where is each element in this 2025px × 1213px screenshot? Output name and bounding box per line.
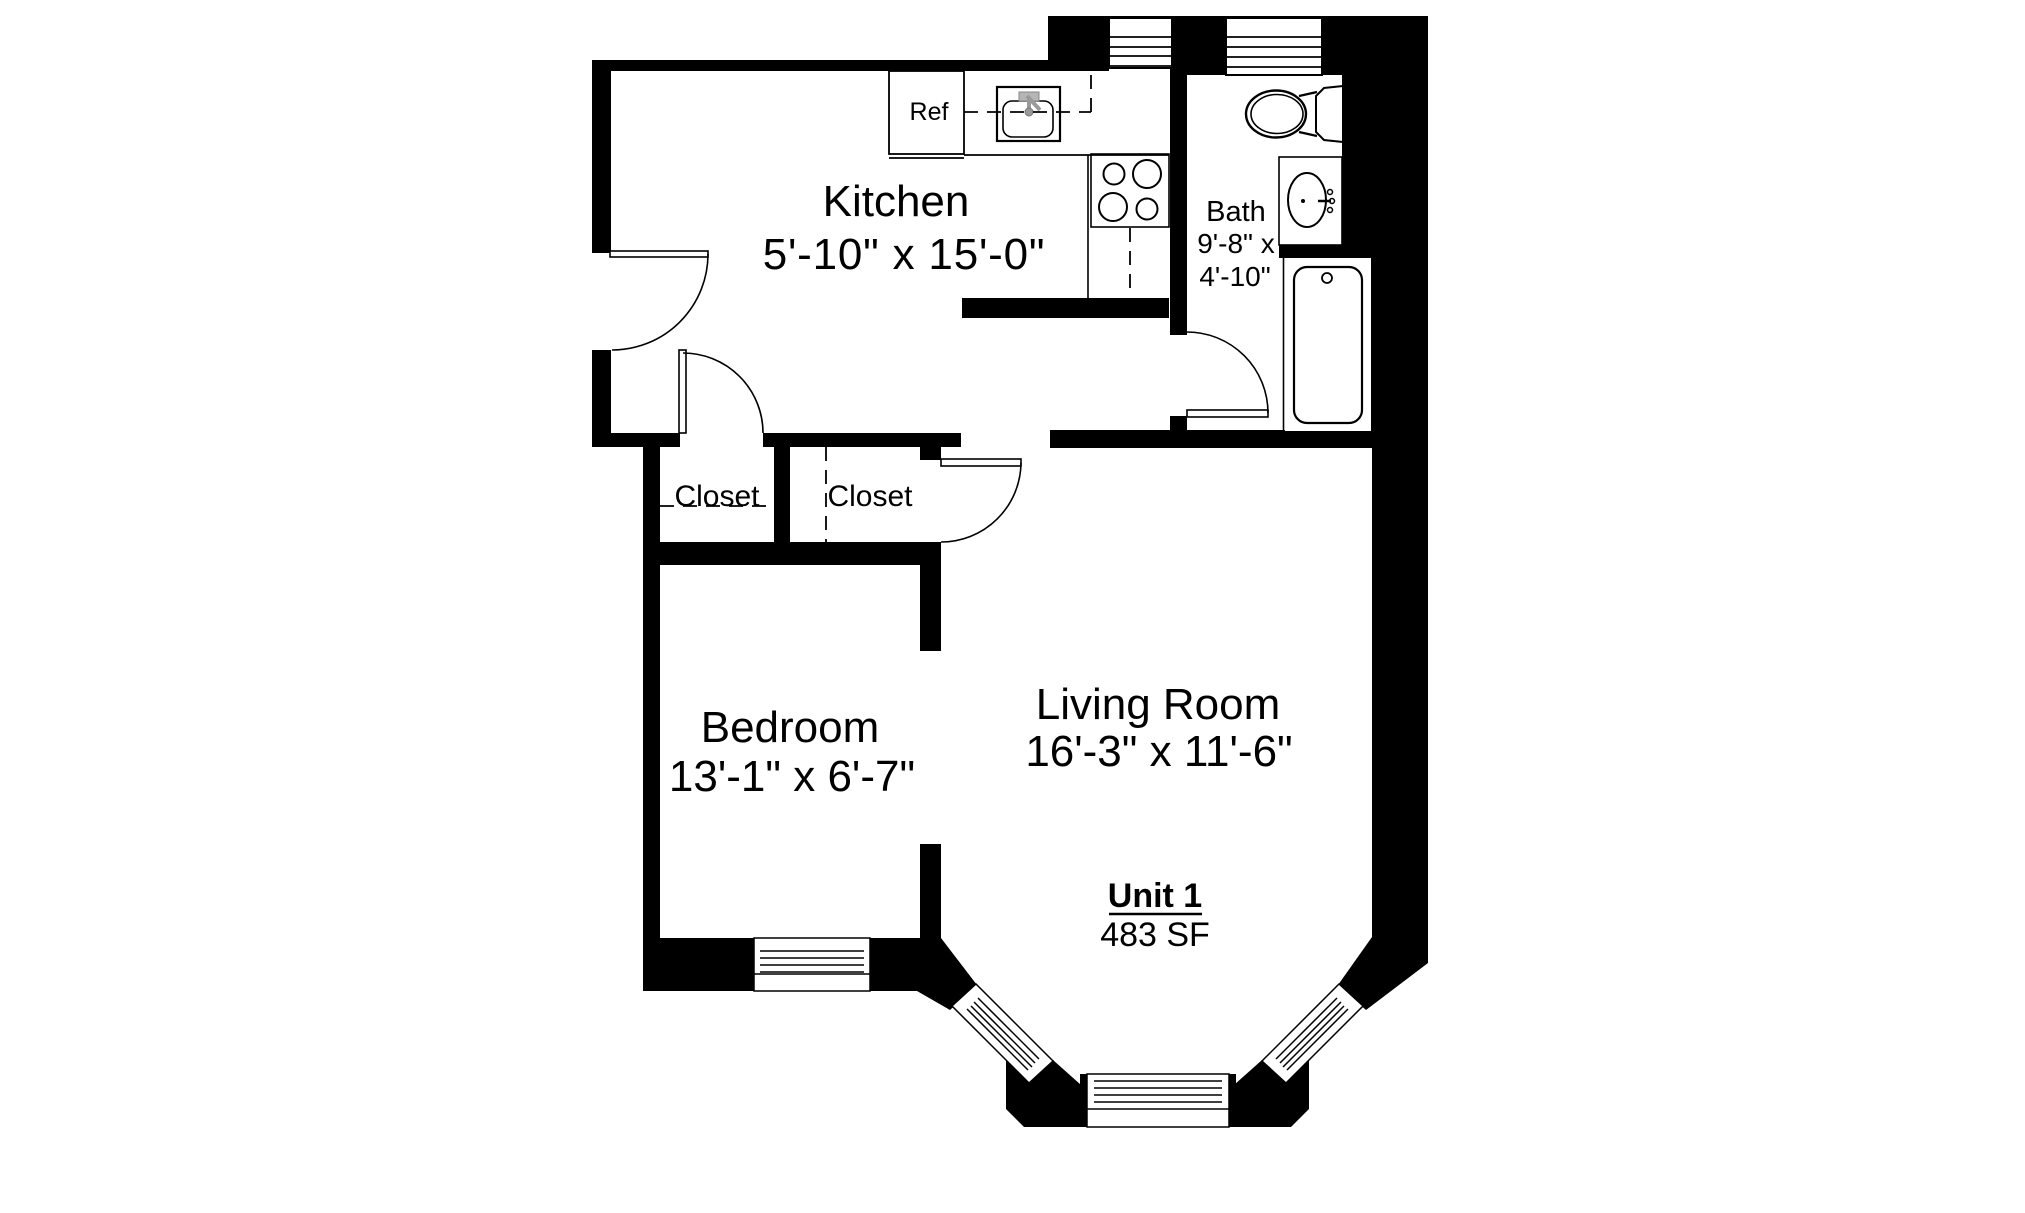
svg-text:Closet: Closet [827,480,913,513]
svg-text:Bedroom: Bedroom [701,703,880,752]
svg-text:4'-10": 4'-10" [1199,261,1270,292]
svg-text:Unit 1: Unit 1 [1108,877,1202,915]
svg-text:483 SF: 483 SF [1100,916,1210,954]
svg-text:9'-8" x: 9'-8" x [1197,228,1275,259]
svg-text:16'-3" x 11'-6": 16'-3" x 11'-6" [1025,727,1292,776]
svg-text:Kitchen: Kitchen [823,177,970,226]
svg-text:5'-10" x 15'-0": 5'-10" x 15'-0" [763,230,1046,279]
svg-text:Ref: Ref [910,98,949,126]
svg-text:Living Room: Living Room [1036,680,1281,729]
svg-text:13'-1" x 6'-7": 13'-1" x 6'-7" [669,752,915,801]
svg-text:Bath: Bath [1206,196,1266,228]
svg-text:Closet: Closet [674,480,760,513]
